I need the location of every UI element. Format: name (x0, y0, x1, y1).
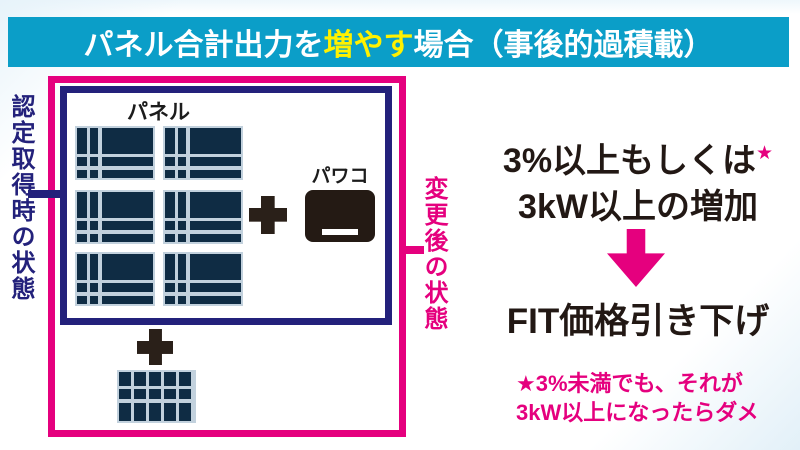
added-solar-panel-icon (117, 370, 196, 423)
condition-line1: 3%以上もしくは★ (480, 133, 796, 182)
panel-group-label: パネル (127, 96, 190, 126)
solar-panel-icon (75, 190, 155, 244)
solar-panel-icon (75, 126, 155, 180)
condition-line1-text: 3%以上もしくは (503, 142, 756, 180)
plus-icon (249, 196, 287, 234)
condition-line2: 3kW以上の増加 (480, 179, 796, 228)
title-banner: パネル合計出力を増やす場合（事後的過積載） (8, 17, 789, 67)
certified-state-label: 認定取得時の状態 (8, 94, 32, 302)
infographic-canvas: パネル合計出力を増やす場合（事後的過積載） 認定取得時の状態 変更後の状態 パネ… (0, 0, 800, 450)
outcome-text: FIT価格引き下げ (470, 293, 800, 344)
power-conditioner-slot (322, 229, 358, 235)
solar-panel-icon (163, 190, 243, 244)
footnote-line1: ★3%未満でも、それが (516, 369, 759, 398)
solar-panel-icon (163, 252, 243, 306)
right-connector-line (402, 246, 424, 254)
title-part2: 場合（事後的過積載） (414, 20, 714, 64)
solar-panel-icon (75, 252, 155, 306)
plus-icon (137, 329, 173, 365)
solar-panel-icon (163, 126, 243, 180)
footnote-line2: 3kW以上になったらダメ (516, 398, 759, 427)
star-icon: ★ (756, 143, 773, 164)
title-highlight: 増やす (324, 20, 414, 64)
after-change-label: 変更後の状態 (421, 176, 445, 332)
power-conditioner-icon (305, 190, 375, 242)
footnote: ★3%未満でも、それが 3kW以上になったらダメ (516, 369, 759, 427)
left-connector-line (28, 190, 62, 198)
title-part1: パネル合計出力を (84, 20, 324, 64)
